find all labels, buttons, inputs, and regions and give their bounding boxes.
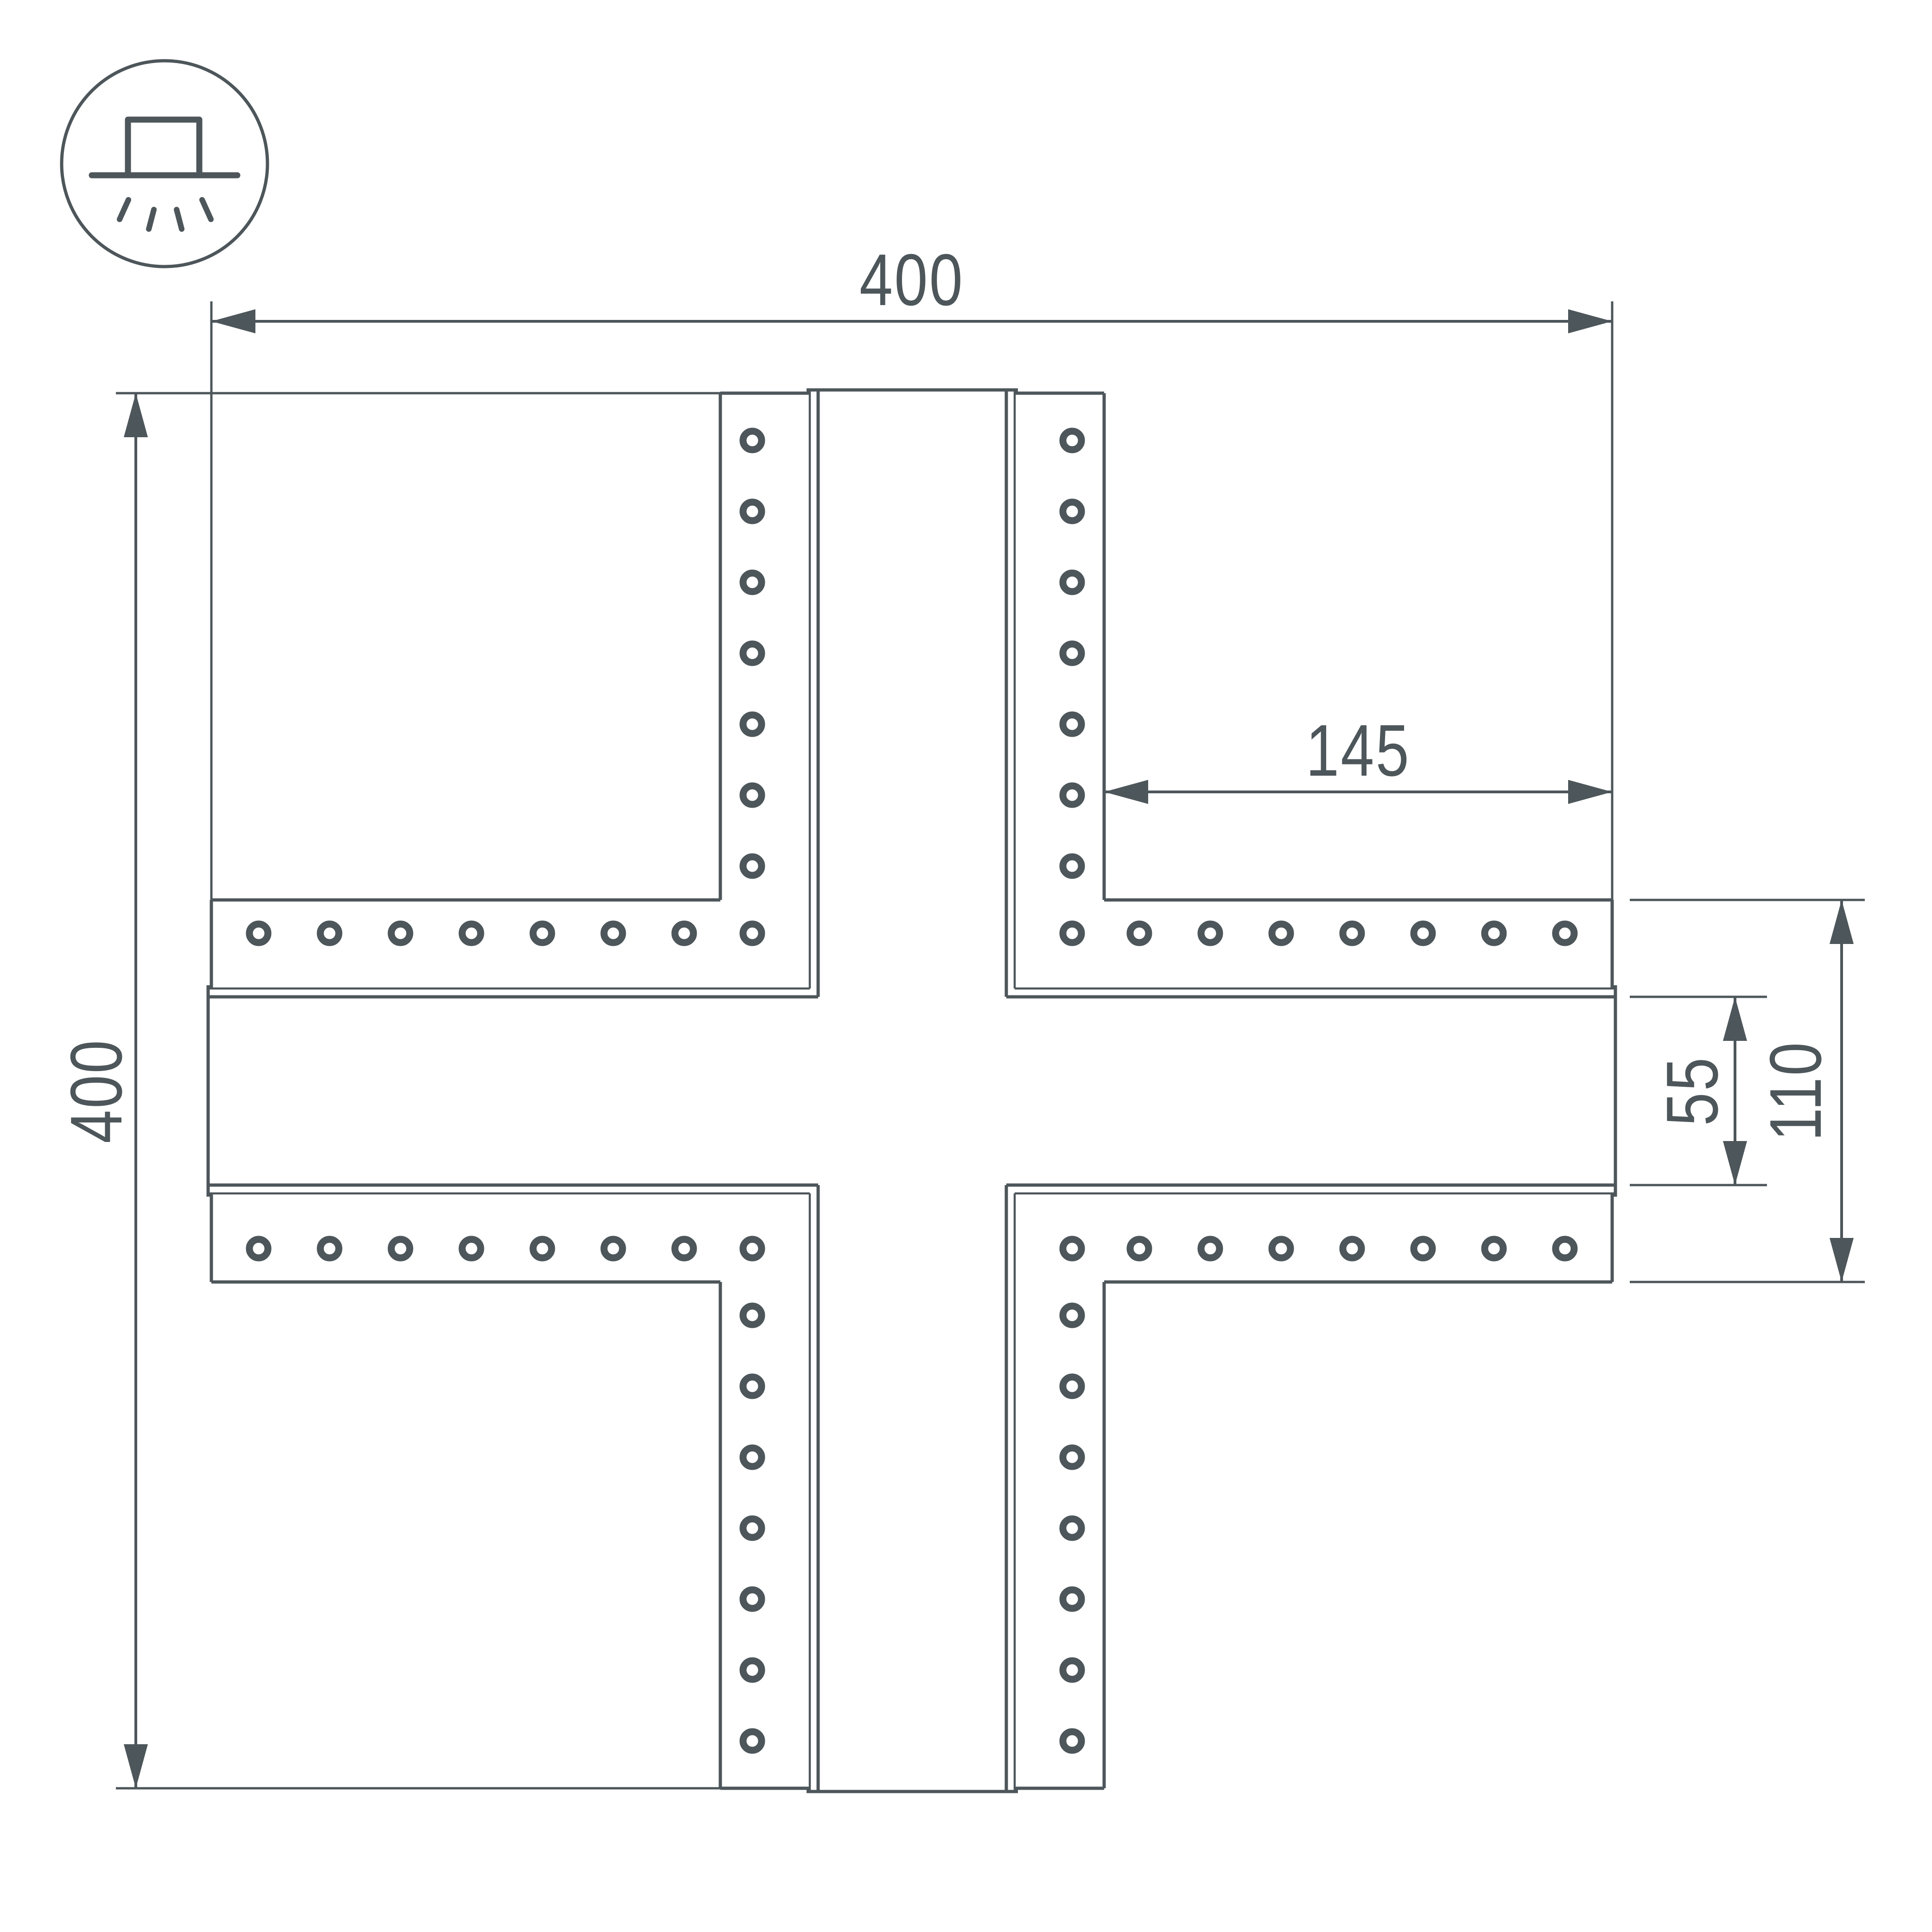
dimension-overall-height: 400 [55,393,720,1788]
arrowhead-top [124,393,148,437]
mounting-hole [743,924,762,943]
mounting-hole [604,924,623,943]
connector-drawing: 400 400 145 55 110 [0,0,1932,1932]
mounting-hole [249,924,268,943]
mounting-hole [1343,924,1361,943]
arrowhead-left [1104,780,1148,804]
mounting-hole [743,1377,762,1396]
icon-light-ray [177,210,182,229]
dimension-label-arm-width: 110 [1754,1041,1837,1141]
icon-fixture-box [128,120,199,175]
mounting-hole [1130,1239,1149,1258]
mounting-hole [743,644,762,663]
mounting-hole [320,1239,339,1258]
mounting-hole [1063,1519,1081,1537]
icon-circle [62,61,267,267]
dimension-slot-width: 55 [1630,997,1767,1185]
dimension-overall-width: 400 [211,239,1612,900]
dimension-label-overall-width: 400 [859,239,964,321]
mounting-hole [743,1239,762,1258]
light-slot-channel [208,390,1615,1792]
arrowhead-right [1568,780,1612,804]
mounting-hole [1063,502,1081,521]
arrowhead-bottom [1830,1238,1854,1282]
mounting-hole [1063,715,1081,733]
mounting-hole [1063,1377,1081,1396]
mounting-hole [1414,1239,1432,1258]
mounting-hole [1414,924,1432,943]
mounting-hole [1063,1661,1081,1679]
recessed-ceiling-light-icon [62,61,267,267]
mounting-hole [320,924,339,943]
mounting-hole [1272,924,1290,943]
arrowhead-top [1723,997,1747,1041]
icon-light-ray [120,200,128,219]
mounting-hole [1130,924,1149,943]
mounting-hole [604,1239,623,1258]
mounting-hole [1485,1239,1503,1258]
mounting-hole [675,1239,693,1258]
mounting-hole [675,924,693,943]
dimension-label-slot-width: 55 [1651,1056,1733,1126]
mounting-hole [1485,924,1503,943]
icon-light-ray [202,200,211,219]
mounting-hole [1063,857,1081,875]
mounting-hole [462,924,481,943]
mounting-hole [1201,924,1220,943]
mounting-hole [743,786,762,804]
mounting-hole [1272,1239,1290,1258]
mounting-hole [1063,786,1081,804]
mounting-hole [743,1519,762,1537]
mounting-hole [462,1239,481,1258]
drawing-page: 400 400 145 55 110 [0,0,1932,1932]
connector-outline [208,390,1615,1792]
mounting-hole [1343,1239,1361,1258]
dimension-label-arm-length: 145 [1306,709,1411,791]
mounting-hole [743,857,762,875]
mounting-hole [1063,1239,1081,1258]
mounting-hole [391,924,410,943]
mounting-hole [743,573,762,592]
icon-light-ray [149,210,154,229]
mounting-hole [1063,573,1081,592]
dimension-label-overall-height: 400 [55,1039,137,1143]
arrowhead-top [1830,900,1854,944]
mounting-hole [743,502,762,521]
mounting-hole [743,715,762,733]
arrowhead-left [211,309,255,333]
mounting-hole [533,924,552,943]
mounting-hole [1063,1732,1081,1750]
mounting-hole [743,431,762,450]
mounting-hole [1063,1306,1081,1325]
mounting-hole [743,1661,762,1679]
arrowhead-bottom [1723,1141,1747,1185]
mounting-hole [533,1239,552,1258]
arrowhead-right [1568,309,1612,333]
mounting-hole [743,1732,762,1750]
mounting-hole [1201,1239,1220,1258]
mounting-hole [249,1239,268,1258]
mounting-hole [1063,924,1081,943]
mounting-holes [249,431,1574,1750]
mounting-hole [743,1590,762,1608]
mounting-hole [1556,1239,1574,1258]
mounting-hole [1063,644,1081,663]
mounting-hole [1063,1448,1081,1467]
dimension-arm-length: 145 [1104,709,1612,804]
mounting-hole [1063,1590,1081,1608]
mounting-hole [743,1448,762,1467]
mounting-hole [1556,924,1574,943]
mounting-hole [743,1306,762,1325]
arrowhead-bottom [124,1744,148,1788]
mounting-hole [391,1239,410,1258]
mounting-hole [1063,431,1081,450]
